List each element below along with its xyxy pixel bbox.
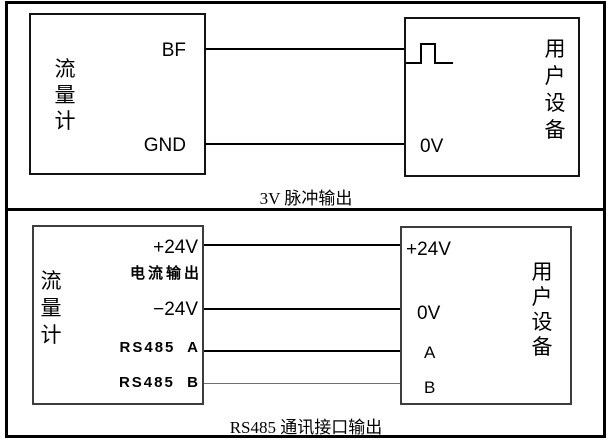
user-device-label: 用户设备 xyxy=(526,260,558,360)
wire-minus24v-0v xyxy=(204,308,400,310)
user-device-label-char: 备 xyxy=(532,335,553,359)
wire-rs485-a xyxy=(204,350,400,352)
terminal-a-in: A xyxy=(424,343,435,363)
terminal-0v: 0V xyxy=(420,137,443,157)
terminal-b-in: B xyxy=(424,378,435,398)
user-device-label-char: 用 xyxy=(545,37,566,61)
user-device-label-char: 设 xyxy=(532,310,553,334)
flowmeter-label-char: 流 xyxy=(55,57,76,81)
user-device-label-char: 备 xyxy=(545,118,566,142)
user-device-label: 用户设备 xyxy=(539,36,571,144)
flowmeter-label: 流量计 xyxy=(35,268,67,349)
terminal-current-output: 电流输出 xyxy=(80,264,202,284)
flowmeter-label-char: 量 xyxy=(55,83,76,107)
terminal-minus24v: −24V xyxy=(90,300,198,320)
user-device-label-char: 户 xyxy=(532,285,553,309)
terminal-0v-in: 0V xyxy=(417,304,440,324)
flowmeter-label: 流量计 xyxy=(49,56,81,134)
user-device-label-char: 户 xyxy=(545,64,566,88)
flowmeter-label-char: 计 xyxy=(55,109,76,133)
panel-caption: RS485 通讯接口输出 xyxy=(0,413,612,438)
wire-gnd xyxy=(205,143,404,145)
terminal-bf: BF xyxy=(120,41,186,61)
wiring-diagram: 流量计 BF GND 0V 用户设备 3V 脉冲输出 流量计 +24V 电流输出… xyxy=(0,0,612,444)
flowmeter-label-char: 流 xyxy=(41,269,62,293)
wire-plus24v xyxy=(204,244,400,246)
wire-rs485-b xyxy=(204,383,400,384)
terminal-gnd: GND xyxy=(120,136,186,156)
terminal-plus24v-in: +24V xyxy=(406,240,451,260)
panel-caption: 3V 脉冲输出 xyxy=(0,184,612,209)
terminal-rs485-b: RS485 B xyxy=(80,373,200,393)
wire-bf xyxy=(205,48,404,50)
flowmeter-label-char: 量 xyxy=(41,296,62,320)
flowmeter-label-char: 计 xyxy=(41,323,62,347)
terminal-plus24v: +24V xyxy=(90,238,198,258)
square-pulse-icon xyxy=(406,42,455,65)
terminal-rs485-a: RS485 A xyxy=(80,338,200,358)
user-device-label-char: 设 xyxy=(545,91,566,115)
user-device-label-char: 用 xyxy=(532,260,553,284)
